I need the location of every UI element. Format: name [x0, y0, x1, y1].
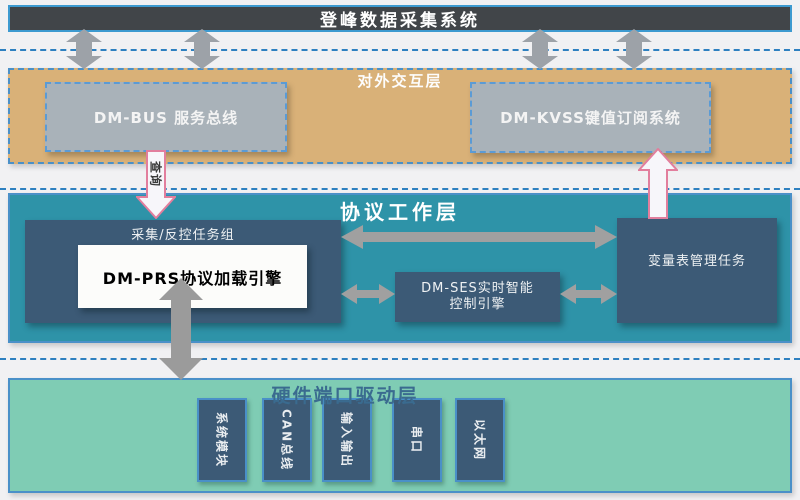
task-group-label: 采集/反控任务组 [25, 224, 341, 243]
updown-arrow-icon [184, 29, 220, 69]
interaction-layer-title: 对外交互层 [357, 70, 442, 91]
dm-ses-label-line1: DM-SES实时智能 [421, 281, 534, 297]
port-label: 以太网 [472, 419, 489, 461]
leftright-arrow-icon [560, 284, 617, 304]
port-box-can-bus: CAN总线 [262, 398, 312, 482]
leftright-arrow-icon [341, 225, 617, 249]
updown-arrow-icon [522, 29, 558, 69]
up-flow-arrow-icon [638, 148, 678, 219]
system-title-bar: 登峰数据采集系统 [8, 5, 792, 32]
updown-arrow-icon [66, 29, 102, 69]
hardware-layer-title: 硬件端口驱动层 [271, 381, 418, 408]
port-box-input-output: 输入输出 [322, 398, 372, 482]
port-label: 串口 [409, 426, 426, 454]
dashed-separator-bottom [0, 358, 800, 360]
port-label: 输入输出 [339, 412, 356, 468]
dm-bus-label: DM-BUS 服务总线 [94, 107, 238, 128]
variable-table-label: 变量表管理任务 [617, 250, 777, 269]
protocol-layer-title: 协议工作层 [340, 196, 460, 225]
port-box-serial-port: 串口 [392, 398, 442, 482]
port-label: CAN总线 [279, 409, 296, 471]
port-label: 系统模块 [214, 412, 231, 468]
system-title: 登峰数据采集系统 [320, 6, 480, 31]
architecture-diagram: 登峰数据采集系统 对外交互层 DM-BUS 服务总线 DM-KVSS键值订阅系统… [0, 0, 800, 500]
updown-arrow-icon [616, 29, 652, 69]
dm-kvss-subscription-box: DM-KVSS键值订阅系统 [470, 82, 711, 153]
port-box-system-module: 系统模块 [197, 398, 247, 482]
dm-bus-service-bus-box: DM-BUS 服务总线 [45, 82, 287, 152]
variable-table-task-box: 变量表管理任务 [617, 218, 777, 323]
leftright-arrow-icon [341, 284, 395, 304]
dm-kvss-label: DM-KVSS键值订阅系统 [500, 107, 681, 128]
bus-down-arrow-label: 查询 [145, 157, 167, 191]
dm-ses-label-line2: 控制引擎 [449, 297, 505, 313]
dashed-separator-middle [0, 188, 800, 190]
dm-ses-engine-box: DM-SES实时智能 控制引擎 [395, 272, 560, 322]
updown-arrow-icon [159, 278, 203, 380]
port-box-ethernet: 以太网 [455, 398, 505, 482]
dashed-separator-top [0, 49, 800, 51]
